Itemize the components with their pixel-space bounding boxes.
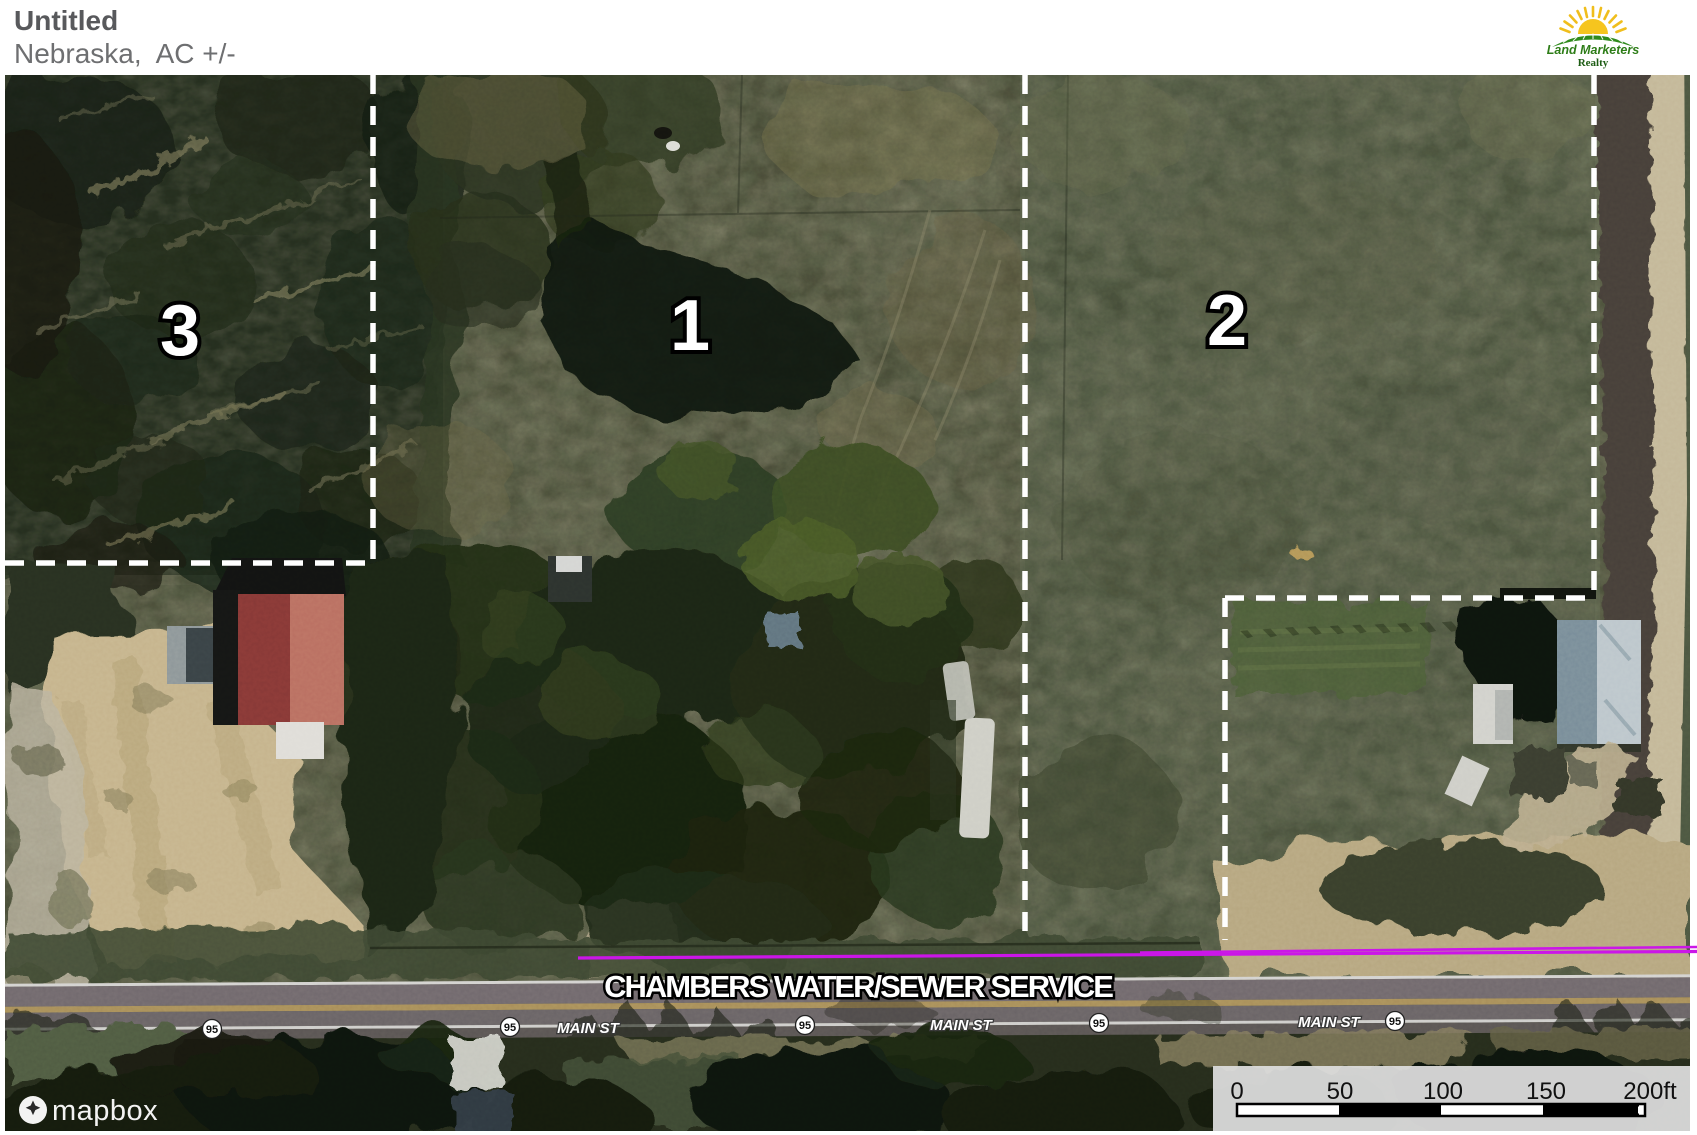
svg-text:150: 150: [1526, 1078, 1566, 1105]
svg-text:MAIN ST: MAIN ST: [1298, 1014, 1362, 1031]
svg-text:MAIN ST: MAIN ST: [930, 1017, 994, 1034]
svg-text:2: 2: [1207, 281, 1247, 361]
svg-text:95: 95: [504, 1022, 516, 1034]
svg-text:CHAMBERS WATER/SEWER SERVICE: CHAMBERS WATER/SEWER SERVICE: [604, 969, 1113, 1004]
svg-text:95: 95: [1093, 1018, 1105, 1030]
svg-text:200ft: 200ft: [1623, 1078, 1677, 1105]
svg-text:mapbox: mapbox: [52, 1095, 158, 1127]
svg-text:95: 95: [206, 1024, 218, 1036]
svg-text:50: 50: [1327, 1078, 1354, 1105]
svg-text:0: 0: [1230, 1078, 1243, 1105]
svg-text:3: 3: [160, 291, 200, 371]
svg-text:1: 1: [670, 286, 710, 366]
svg-text:MAIN ST: MAIN ST: [557, 1020, 621, 1037]
svg-text:95: 95: [1389, 1016, 1401, 1028]
svg-text:95: 95: [799, 1020, 811, 1032]
svg-text:100: 100: [1423, 1078, 1463, 1105]
